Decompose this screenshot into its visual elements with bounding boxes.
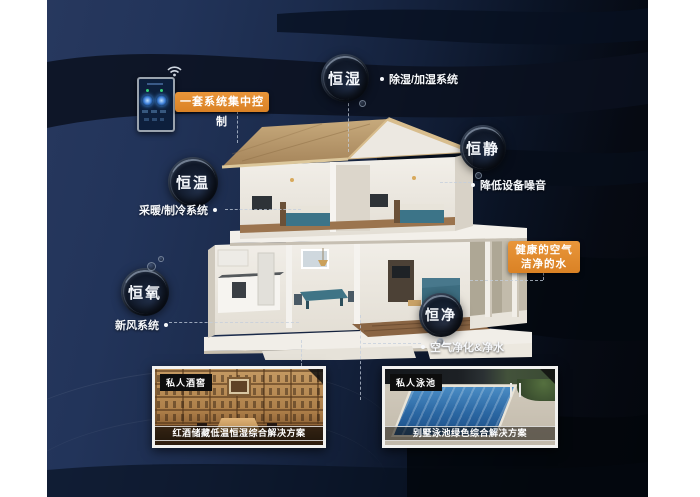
note-noise-text: 降低设备噪音 [480, 177, 546, 193]
note-noise: 降低设备噪音 [471, 177, 546, 193]
bubble-quiet-label: 恒静 [466, 138, 500, 159]
mini-bubble [147, 262, 156, 271]
pool-ladder [510, 383, 521, 397]
bubble-humidity-label: 恒湿 [328, 68, 362, 89]
bubble-oxygen: 恒氧 [121, 268, 169, 316]
poster-canvas: 一套系统集中控制 健康的空气 洁净的水 恒湿 恒静 恒温 恒氧 恒净 [0, 0, 700, 497]
bubble-purity: 恒净 [419, 293, 463, 337]
dashed-connector [470, 280, 543, 281]
note-purification-text: 空气净化&净水 [430, 339, 504, 355]
bullet-dot [213, 208, 217, 212]
central-control-callout: 一套系统集中控制 [175, 92, 269, 112]
bubble-quiet: 恒静 [460, 125, 506, 171]
wall-picture [227, 377, 251, 396]
note-fresh-air: 新风系统 [115, 317, 168, 333]
wine-photo-tag: 私人酒窖 [160, 374, 212, 391]
corner-ribbon [308, 369, 323, 384]
bubble-humidity: 恒湿 [321, 54, 369, 102]
clean-water-line: 洁净的水 [508, 257, 580, 271]
dashed-connector [348, 98, 349, 152]
dashed-connector [225, 209, 301, 210]
pool-photo: 私人泳池 别墅泳池绿色综合解决方案 [382, 366, 558, 448]
mini-bubble [158, 256, 164, 262]
bubble-purity-label: 恒净 [425, 305, 457, 325]
note-fresh-air-text: 新风系统 [115, 317, 159, 333]
note-purification: 空气净化&净水 [421, 339, 504, 355]
dashed-connector [440, 182, 471, 183]
dashed-connector [360, 315, 361, 400]
smart-home-poster: 一套系统集中控制 健康的空气 洁净的水 恒湿 恒静 恒温 恒氧 恒净 [47, 0, 648, 497]
dashed-connector [363, 343, 421, 344]
dashed-connector [169, 322, 299, 323]
bubble-oxygen-label: 恒氧 [128, 282, 162, 303]
dashed-connector [237, 111, 238, 143]
healthy-air-water-callout: 健康的空气 洁净的水 [508, 241, 580, 273]
pool-photo-caption: 别墅泳池绿色综合解决方案 [385, 426, 555, 441]
wine-photo-caption: 红酒储藏低温恒湿综合解决方案 [155, 426, 323, 441]
control-panel [137, 77, 175, 132]
note-heating-cooling: 采暖/制冷系统 [139, 202, 217, 218]
wifi-icon [166, 63, 183, 77]
bullet-dot [380, 77, 384, 81]
bullet-dot [164, 323, 168, 327]
note-heating-text: 采暖/制冷系统 [139, 202, 208, 218]
pool-photo-tag: 私人泳池 [390, 374, 442, 391]
dashed-connector [301, 340, 302, 366]
wine-cellar-photo: 私人酒窖 红酒储藏低温恒湿综合解决方案 [152, 366, 326, 448]
bullet-dot [421, 345, 425, 349]
note-humidity-system: 除湿/加湿系统 [380, 71, 458, 87]
note-humidity-text: 除湿/加湿系统 [389, 71, 458, 87]
bubble-temperature-label: 恒温 [176, 172, 210, 193]
bubble-temperature: 恒温 [168, 157, 218, 207]
mini-bubble [359, 100, 366, 107]
bullet-dot [471, 183, 475, 187]
healthy-air-line: 健康的空气 [508, 243, 580, 257]
corner-ribbon [540, 369, 555, 384]
